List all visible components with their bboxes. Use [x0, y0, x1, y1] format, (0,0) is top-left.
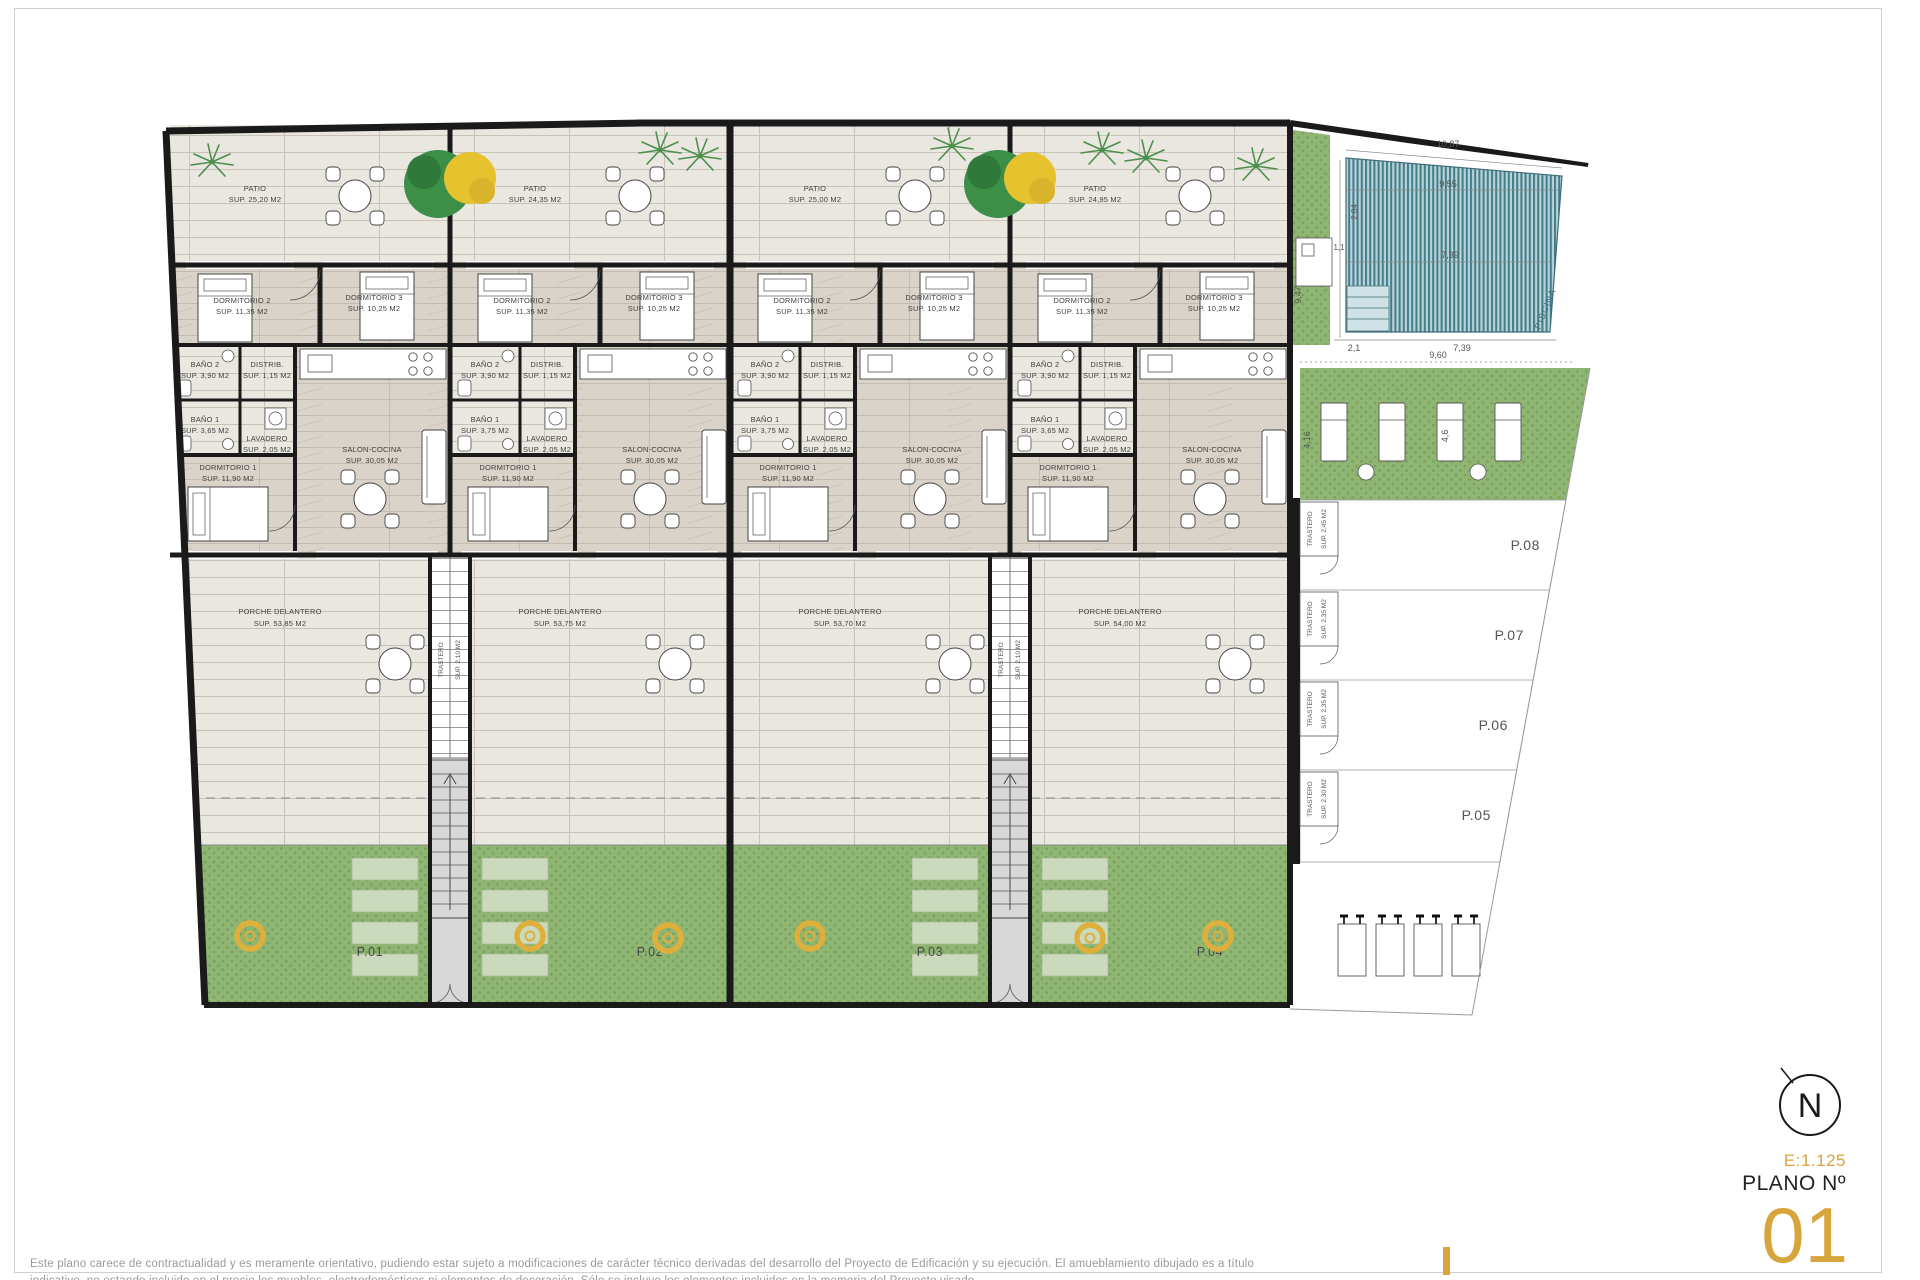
stair-corridor-2: TRASTERO SUP. 2,10 M2	[990, 555, 1030, 1005]
trastero-area: SUP. 2,45 M2	[1321, 509, 1328, 549]
pool-dim: 9,60	[1429, 350, 1447, 360]
pool-dim: 7,39	[1441, 250, 1459, 260]
porch-area: SUP. 53,70 M2	[814, 619, 867, 628]
floor-plan-svg: PATIO SUP. 25,20 M2 DORMITORIO 2 SUP. 11…	[0, 0, 1920, 1280]
bike-racks	[1338, 916, 1480, 976]
room-area: SUP. 3,65 M2	[181, 426, 229, 435]
room-label: BAÑO 1	[751, 415, 780, 424]
room-label: LAVADERO	[1086, 434, 1127, 443]
north-tick	[1781, 1068, 1793, 1083]
room-area: SUP. 11,90 M2	[482, 474, 534, 483]
pool-steps	[1347, 286, 1389, 331]
scale-label: E:1.125	[1784, 1151, 1846, 1170]
room-label: LAVADERO	[246, 434, 287, 443]
plano-number: 01	[1761, 1191, 1848, 1279]
room-area: SUP. 30,05 M2	[346, 456, 399, 465]
room-label: DORMITORIO 1	[479, 463, 536, 472]
room-label: SALON-COCINA	[1182, 445, 1242, 454]
room-area: SUP. 10,25 M2	[1188, 304, 1241, 313]
room-label: DISTRIB.	[1090, 360, 1123, 369]
room-label: SALON-COCINA	[342, 445, 402, 454]
room-label: DORMITORIO 3	[625, 293, 682, 302]
patio-area: SUP. 25,20 M2	[229, 195, 282, 204]
sheet: PATIO SUP. 25,20 M2 DORMITORIO 2 SUP. 11…	[0, 0, 1920, 1280]
room-area: SUP. 3,75 M2	[461, 426, 509, 435]
patio-label: PATIO	[1084, 184, 1106, 193]
room-label: BAÑO 2	[191, 360, 220, 369]
room-label: DORMITORIO 2	[213, 296, 270, 305]
patio-label: PATIO	[804, 184, 826, 193]
parking: TRASTERO SUP. 2,45 M2 TRASTERO SUP. 2,35…	[1292, 498, 1566, 864]
pool-dim: 2,1	[1348, 343, 1361, 353]
room-label: DISTRIB.	[810, 360, 843, 369]
room-area: SUP. 1,15 M2	[243, 371, 291, 380]
room-area: SUP. 3,65 M2	[1021, 426, 1069, 435]
trastero-label: TRASTERO	[1307, 691, 1314, 726]
room-area: SUP. 1,15 M2	[803, 371, 851, 380]
room-label: SALON-COCINA	[902, 445, 962, 454]
lawn-dim: 4,16	[1302, 431, 1312, 449]
trastero-area: SUP. 2,10 M2	[1015, 640, 1022, 680]
room-label: DORMITORIO 1	[1039, 463, 1096, 472]
porch-area: SUP. 53,85 M2	[254, 619, 307, 628]
room-label: DORMITORIO 3	[1185, 293, 1242, 302]
room-label: BAÑO 1	[1031, 415, 1060, 424]
room-label: BAÑO 2	[1031, 360, 1060, 369]
room-area: SUP. 10,25 M2	[908, 304, 961, 313]
porch-label: PORCHE DELANTERO	[798, 607, 881, 616]
room-label: DORMITORIO 2	[1053, 296, 1110, 305]
porch-label: PORCHE DELANTERO	[1078, 607, 1161, 616]
parking-slot-id: P.06	[1479, 717, 1508, 733]
room-label: LAVADERO	[806, 434, 847, 443]
pool-dim: 1,1	[1333, 243, 1345, 252]
room-label: SALON-COCINA	[622, 445, 682, 454]
room-area: SUP. 11,90 M2	[1042, 474, 1094, 483]
room-label: DISTRIB.	[250, 360, 283, 369]
room-label: BAÑO 1	[191, 415, 220, 424]
room-area: SUP. 30,05 M2	[906, 456, 959, 465]
trastero-label: TRASTERO	[1307, 781, 1314, 816]
room-label: DISTRIB.	[530, 360, 563, 369]
trastero-area: SUP. 2,35 M2	[1321, 689, 1328, 729]
disclaimer-line-2: indicativo, no estando incluido en el pr…	[30, 1275, 978, 1280]
disclaimer-line-1: Este plano carece de contractualidad y e…	[30, 1258, 1254, 1270]
room-label: DORMITORIO 2	[773, 296, 830, 305]
room-area: SUP. 10,25 M2	[348, 304, 401, 313]
patio-area: SUP. 25,00 M2	[789, 195, 842, 204]
parking-slot-id: P.05	[1462, 807, 1491, 823]
lawn-loungers: 4,16 4,6	[1300, 368, 1590, 500]
room-area: SUP. 3,90 M2	[1021, 371, 1069, 380]
room-area: SUP. 3,90 M2	[741, 371, 789, 380]
room-area: SUP. 2,05 M2	[803, 445, 851, 454]
room-label: DORMITORIO 1	[759, 463, 816, 472]
stairs	[430, 760, 470, 1005]
lawn-dim: 4,6	[1440, 430, 1450, 443]
room-area: SUP. 11,35 M2	[1056, 307, 1108, 316]
parking-slot-id: P.07	[1495, 627, 1524, 643]
room-area: SUP. 2,05 M2	[243, 445, 291, 454]
room-area: SUP. 3,90 M2	[461, 371, 509, 380]
pool-dim: 7,39	[1453, 343, 1471, 353]
room-area: SUP. 11,35 M2	[216, 307, 268, 316]
title-block: N E:1.125 PLANO Nº 01	[1443, 1068, 1848, 1279]
room-label: BAÑO 2	[751, 360, 780, 369]
room-area: SUP. 3,90 M2	[181, 371, 229, 380]
patio-label: PATIO	[524, 184, 546, 193]
garden-unit-id: P.03	[917, 945, 944, 959]
room-area: SUP. 3,75 M2	[741, 426, 789, 435]
room-area: SUP. 2,05 M2	[1083, 445, 1131, 454]
room-area: SUP. 11,35 M2	[496, 307, 548, 316]
patio-area: SUP. 24,35 M2	[509, 195, 562, 204]
room-area: SUP. 11,35 M2	[776, 307, 828, 316]
pool-dim: 9,55	[1439, 179, 1457, 189]
room-label: BAÑO 2	[471, 360, 500, 369]
porch-label: PORCHE DELANTERO	[238, 607, 321, 616]
trastero-label: TRASTERO	[998, 642, 1005, 677]
trastero-label: TRASTERO	[1307, 601, 1314, 636]
room-label: DORMITORIO 2	[493, 296, 550, 305]
room-area: SUP. 30,05 M2	[626, 456, 679, 465]
pool-dim: 10,87	[1437, 139, 1460, 149]
logo-bar	[1443, 1247, 1450, 1275]
room-area: SUP. 10,25 M2	[628, 304, 681, 313]
stairs	[990, 760, 1030, 1005]
north-letter: N	[1798, 1087, 1823, 1125]
room-area: SUP. 11,90 M2	[762, 474, 814, 483]
porch-area: SUP. 53,75 M2	[534, 619, 587, 628]
room-label: BAÑO 1	[471, 415, 500, 424]
trastero-label: TRASTERO	[1307, 511, 1314, 546]
room-label: DORMITORIO 3	[905, 293, 962, 302]
room-area: SUP. 30,05 M2	[1186, 456, 1239, 465]
trastero-area: SUP. 2,30 M2	[1321, 779, 1328, 819]
room-area: SUP. 11,90 M2	[202, 474, 254, 483]
porch-label: PORCHE DELANTERO	[518, 607, 601, 616]
pool-dim: 2,84	[1350, 204, 1359, 220]
room-area: SUP. 1,15 M2	[523, 371, 571, 380]
pool-dim: 9,47	[1293, 286, 1303, 304]
pool-zone: 10,87 9,55 7,39 1,1 2,1 7,39 9,47 2,84 9…	[1293, 128, 1588, 368]
room-label: LAVADERO	[526, 434, 567, 443]
room-label: DORMITORIO 3	[345, 293, 402, 302]
trastero-label: TRASTERO	[438, 642, 445, 677]
trastero-area: SUP. 2,35 M2	[1321, 599, 1328, 639]
room-area: SUP. 1,15 M2	[1083, 371, 1131, 380]
trastero-area: SUP. 2,10 M2	[455, 640, 462, 680]
parking-slot-id: P.08	[1511, 537, 1540, 553]
room-label: DORMITORIO 1	[199, 463, 256, 472]
patio-area: SUP. 24,95 M2	[1069, 195, 1122, 204]
site-boundary-bottom	[1290, 1009, 1472, 1015]
garden-unit-id: P.01	[357, 945, 384, 959]
porch-area: SUP. 54,00 M2	[1094, 619, 1147, 628]
patio-label: PATIO	[244, 184, 266, 193]
stair-corridor-1: TRASTERO SUP. 2,10 M2	[430, 555, 470, 1005]
room-area: SUP. 2,05 M2	[523, 445, 571, 454]
